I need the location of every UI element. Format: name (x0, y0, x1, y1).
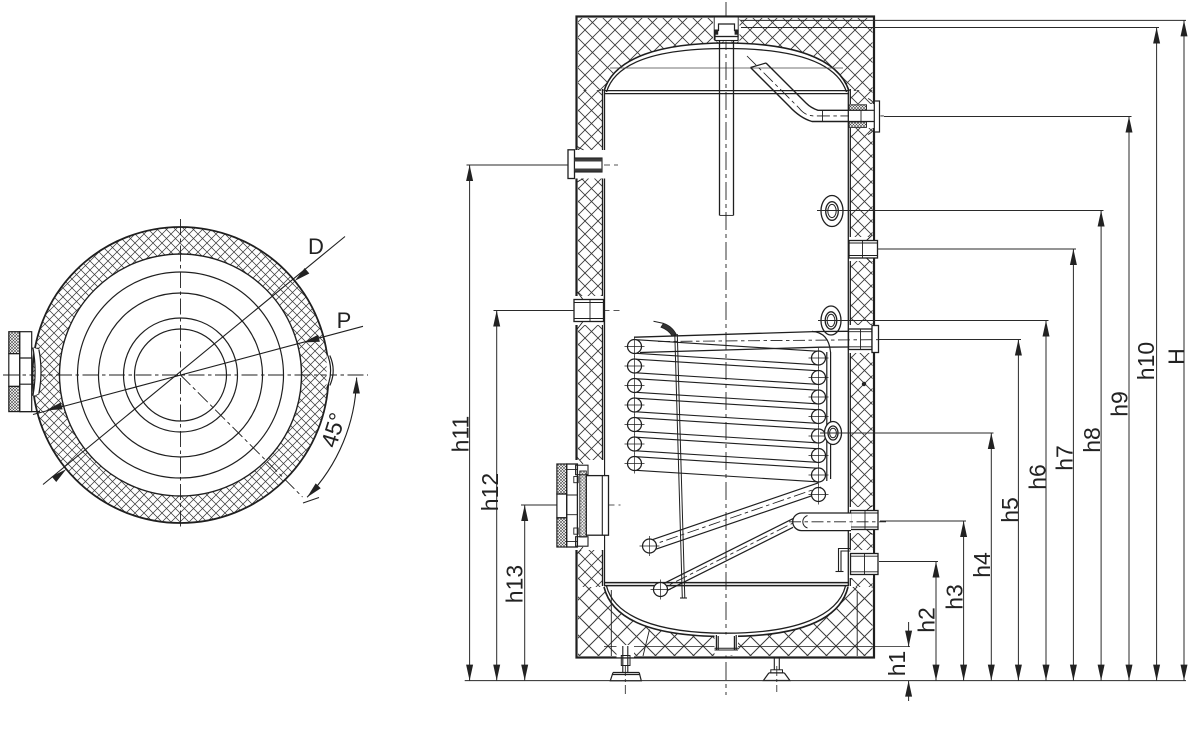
svg-text:P: P (337, 308, 352, 333)
svg-text:h8: h8 (1079, 427, 1105, 453)
svg-text:D: D (308, 234, 324, 259)
svg-text:h1: h1 (884, 651, 910, 677)
svg-text:h11: h11 (448, 416, 474, 453)
svg-text:h6: h6 (1025, 464, 1051, 490)
svg-text:h7: h7 (1052, 445, 1078, 471)
svg-text:h3: h3 (942, 584, 968, 610)
svg-text:h5: h5 (997, 497, 1023, 523)
svg-text:h9: h9 (1107, 391, 1133, 417)
svg-text:h4: h4 (969, 552, 995, 578)
svg-text:h2: h2 (914, 607, 940, 633)
svg-text:h10: h10 (1133, 342, 1159, 380)
svg-text:h12: h12 (477, 473, 503, 511)
svg-text:H: H (1164, 348, 1190, 365)
svg-text:h13: h13 (502, 565, 528, 603)
